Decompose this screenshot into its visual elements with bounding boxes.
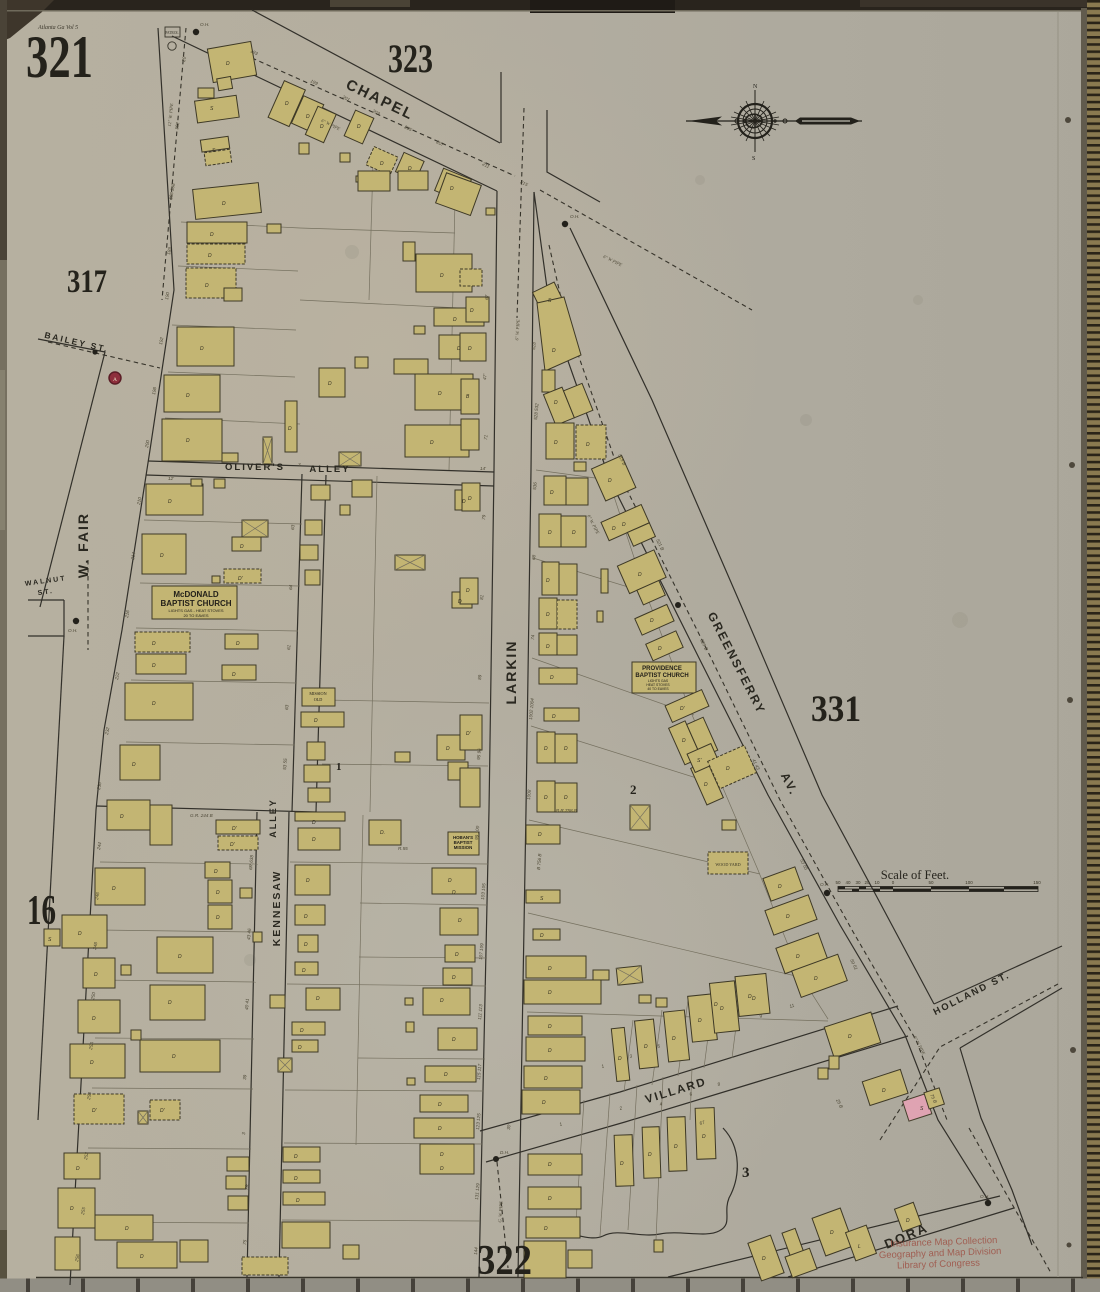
svg-text:KENNESAW: KENNESAW (271, 870, 283, 947)
svg-text:D: D (288, 426, 292, 432)
svg-text:D: D (906, 1218, 910, 1224)
svg-text:BAPTIST CHURCH: BAPTIST CHURCH (160, 599, 231, 608)
svg-text:D: D (786, 914, 790, 920)
svg-text:D: D (762, 1256, 766, 1262)
svg-text:D: D (298, 1045, 302, 1051)
svg-text:B.R 758 B: B.R 758 B (556, 808, 577, 813)
svg-text:O.H.: O.H. (570, 214, 579, 219)
svg-text:D: D (882, 1088, 886, 1094)
svg-text:O.H.: O.H. (200, 22, 209, 27)
svg-text:1: 1 (336, 761, 342, 773)
svg-text:D: D (226, 61, 230, 67)
svg-text:D: D (210, 232, 214, 238)
svg-text:D: D (236, 641, 240, 647)
svg-text:536: 536 (532, 482, 538, 491)
svg-text:50: 50 (835, 880, 841, 885)
svg-text:321: 321 (26, 24, 93, 90)
svg-text:D: D (440, 998, 444, 1004)
svg-text:O.H.: O.H. (820, 882, 829, 887)
svg-text:D: D (328, 381, 332, 387)
svg-text:OLD: OLD (314, 697, 323, 702)
svg-text:D: D (70, 1206, 74, 1212)
svg-text:74: 74 (530, 634, 535, 640)
svg-text:ALLEY: ALLEY (309, 464, 350, 475)
svg-text:D: D (550, 675, 554, 681)
svg-text:D: D (152, 701, 156, 707)
svg-text:O.H.: O.H. (68, 628, 77, 633)
svg-text:D: D (682, 738, 686, 744)
svg-text:W. FAIR: W. FAIR (75, 512, 91, 578)
svg-text:D: D (90, 1060, 94, 1066)
svg-text:D: D (168, 499, 172, 505)
svg-text:D: D (544, 1076, 548, 1082)
svg-text:D: D (172, 1054, 176, 1060)
svg-text:D: D (470, 308, 474, 314)
svg-text:D: D (458, 918, 462, 924)
svg-text:D: D (544, 1226, 548, 1232)
svg-text:144: 144 (473, 1247, 479, 1256)
svg-text:40 41: 40 41 (244, 998, 250, 1010)
svg-text:D: D (222, 201, 226, 207)
svg-text:D: D (208, 253, 212, 259)
svg-text:323: 323 (388, 36, 433, 81)
svg-text:D: D (160, 553, 164, 559)
svg-text:20: 20 (864, 880, 870, 885)
svg-text:Atlanta Ga Vol 5: Atlanta Ga Vol 5 (37, 25, 78, 31)
svg-text:53 55: 53 55 (282, 758, 288, 770)
svg-text:D: D (92, 1016, 96, 1022)
svg-text:N: N (753, 84, 758, 90)
svg-text:L: L (858, 1244, 861, 1250)
svg-text:D: D (814, 976, 818, 982)
svg-text:2: 2 (630, 782, 637, 797)
svg-text:R.55: R.55 (398, 846, 408, 851)
svg-text:D: D (304, 942, 308, 948)
svg-text:317: 317 (67, 264, 107, 300)
svg-text:D: D (552, 348, 556, 354)
svg-text:43 46: 43 46 (246, 928, 252, 940)
svg-text:D: D (168, 1000, 172, 1006)
svg-text:D: D (438, 391, 442, 397)
svg-text:D: D (304, 914, 308, 920)
svg-text:D: D (830, 1230, 834, 1236)
svg-text:D: D (644, 1044, 648, 1050)
svg-text:D: D (554, 400, 558, 406)
svg-text:71: 71 (483, 434, 488, 440)
svg-text:518: 518 (531, 342, 537, 351)
svg-text:D: D (796, 954, 800, 960)
svg-text:D: D (112, 886, 116, 892)
svg-text:G.R. 244 B: G.R. 244 B (190, 813, 213, 818)
svg-text:10: 10 (874, 880, 880, 885)
svg-text:D: D (726, 766, 730, 772)
svg-text:D: D (674, 1144, 678, 1150)
svg-text:12': 12' (168, 476, 174, 481)
svg-text:D: D (546, 578, 550, 584)
svg-text:D: D (440, 1152, 444, 1158)
svg-text:67: 67 (484, 294, 489, 300)
svg-text:D: D (232, 672, 236, 678)
svg-text:D: D (316, 996, 320, 1002)
svg-text:D: D (125, 1226, 129, 1232)
svg-text:D: D (452, 1037, 456, 1043)
svg-text:OLIVER'S: OLIVER'S (225, 462, 285, 473)
svg-text:D: D (564, 795, 568, 801)
svg-text:D: D (320, 124, 324, 130)
svg-text:D: D (140, 1254, 144, 1260)
svg-text:D: D (300, 1028, 304, 1034)
svg-text:D: D (548, 1162, 552, 1168)
svg-text:30': 30' (506, 1124, 512, 1131)
svg-text:D: D (457, 346, 461, 352)
svg-text:D: D (650, 618, 654, 624)
svg-text:D: D (453, 317, 457, 323)
svg-text:PATROL: PATROL (165, 31, 178, 35)
svg-text:McDONALD: McDONALD (173, 590, 219, 599)
svg-text:D: D (438, 1102, 442, 1108)
svg-text:D: D (152, 641, 156, 647)
svg-text:D: D (714, 1002, 718, 1008)
svg-text:D: D (450, 186, 454, 192)
svg-text:D: D (94, 972, 98, 978)
svg-text:D: D (380, 161, 384, 167)
svg-text:D: D (430, 440, 434, 446)
svg-text:D: D (120, 814, 124, 820)
svg-text:95 96: 95 96 (476, 748, 482, 760)
svg-text:D: D (440, 1166, 444, 1172)
svg-text:63: 63 (290, 524, 295, 530)
svg-text:D: D (778, 884, 782, 890)
svg-text:D: D (546, 644, 550, 650)
svg-text:D: D (314, 718, 318, 724)
svg-text:D: D (448, 878, 452, 884)
svg-text:D: D (548, 530, 552, 536)
svg-text:D: D (455, 952, 459, 958)
svg-text:D: D (658, 646, 662, 652)
svg-text:47': 47' (482, 374, 488, 381)
svg-text:D: D (216, 890, 220, 896)
svg-text:40: 40 (845, 880, 851, 885)
svg-text:D: D (408, 166, 412, 172)
svg-text:D: D (468, 496, 472, 502)
svg-text:D: D (552, 714, 556, 720)
svg-text:D: D (216, 915, 220, 921)
svg-text:D: D (466, 588, 470, 594)
svg-text:D: D (612, 526, 616, 532)
svg-text:D: D (186, 438, 190, 444)
svg-text:50: 50 (928, 880, 934, 885)
svg-text:D.: D. (380, 830, 385, 836)
svg-text:A: A (113, 377, 117, 383)
svg-text:D: D (152, 663, 156, 669)
svg-text:D: D (294, 1176, 298, 1182)
svg-text:100: 100 (965, 880, 973, 885)
svg-text:D: D (285, 101, 289, 107)
svg-text:331: 331 (811, 689, 861, 730)
svg-text:D: D (548, 1196, 552, 1202)
svg-text:D: D (704, 782, 708, 788)
svg-text:D: D (548, 990, 552, 996)
svg-text:D: D (698, 1018, 702, 1024)
svg-text:D: D (550, 490, 554, 496)
svg-text:ALLEY: ALLEY (268, 798, 278, 838)
svg-text:20 TO EAVES: 20 TO EAVES (183, 613, 208, 618)
svg-text:MISSION: MISSION (309, 691, 326, 696)
svg-text:81: 81 (479, 594, 484, 600)
svg-text:D: D (648, 1152, 652, 1158)
svg-text:PROVIDENCE: PROVIDENCE (642, 666, 682, 672)
svg-text:150: 150 (1033, 880, 1041, 885)
svg-text:S: S (752, 156, 755, 162)
svg-text:D: D (205, 283, 209, 289)
svg-text:64: 64 (288, 584, 293, 590)
svg-text:D: D (468, 346, 472, 352)
svg-text:D.H.: D.H. (500, 1150, 509, 1155)
svg-text:D: D (620, 1161, 624, 1167)
svg-text:D: D (440, 273, 444, 279)
svg-text:D: D (608, 478, 612, 484)
svg-text:61: 61 (286, 644, 291, 650)
svg-text:D: D (357, 124, 361, 130)
svg-text:D: D (538, 832, 542, 838)
svg-text:D: D (548, 1024, 552, 1030)
svg-text:D: D (554, 440, 558, 446)
svg-text:14': 14' (480, 466, 486, 471)
svg-text:D: D (542, 1100, 546, 1106)
svg-text:79: 79 (481, 514, 486, 520)
svg-text:D: D (586, 442, 590, 448)
svg-text:D: D (638, 572, 642, 578)
svg-text:D: D (240, 544, 244, 550)
svg-text:30: 30 (855, 880, 861, 885)
svg-text:D: D (752, 996, 756, 1002)
svg-text:D: D (564, 746, 568, 752)
svg-text:3: 3 (298, 462, 301, 467)
svg-text:40 TO EAVES: 40 TO EAVES (647, 687, 669, 691)
svg-text:63: 63 (284, 704, 289, 710)
svg-text:D: D (672, 1036, 676, 1042)
svg-text:D: D (178, 954, 182, 960)
svg-text:D: D (544, 795, 548, 801)
svg-text:39: 39 (242, 1074, 247, 1080)
svg-text:68: 68 (531, 554, 536, 560)
svg-text:MISSION: MISSION (454, 845, 473, 850)
svg-text:D: D (302, 968, 306, 974)
svg-text:D: D (548, 1048, 552, 1054)
svg-text:D: D (548, 966, 552, 972)
svg-text:D: D (452, 890, 456, 896)
svg-text:D: D (200, 346, 204, 352)
svg-text:322: 322 (477, 1238, 532, 1284)
svg-text:D: D (540, 933, 544, 939)
svg-text:D: D (312, 837, 316, 843)
svg-text:D: D (848, 1034, 852, 1040)
svg-text:D: D (702, 1134, 706, 1140)
svg-text:D: D (306, 878, 310, 884)
svg-text:D: D (720, 1006, 724, 1012)
svg-text:D: D (544, 746, 548, 752)
svg-text:D: D (462, 499, 466, 505)
svg-text:D: D (186, 393, 190, 399)
svg-text:D: D (296, 1198, 300, 1204)
svg-text:D: D (312, 820, 316, 826)
svg-text:D: D (452, 975, 456, 981)
svg-text:D: D (306, 114, 310, 120)
svg-text:D: D (444, 1072, 448, 1078)
svg-text:LARKIN: LARKIN (503, 640, 519, 705)
svg-text:D: D (294, 1154, 298, 1160)
svg-text:1008: 1008 (526, 789, 532, 800)
svg-text:D: D (214, 869, 218, 875)
svg-text:D: D (76, 1166, 80, 1172)
svg-text:D: D (622, 522, 626, 528)
svg-text:89: 89 (477, 674, 482, 680)
svg-text:75: 75 (242, 1239, 247, 1245)
svg-text:D: D (438, 1126, 442, 1132)
svg-text:D: D (546, 612, 550, 618)
svg-text:D: D (458, 599, 462, 605)
svg-text:16: 16 (27, 888, 56, 934)
svg-text:D: D (446, 746, 450, 752)
svg-text:D: D (572, 530, 576, 536)
svg-text:O.H.: O.H. (980, 1194, 989, 1199)
svg-text:D: D (618, 1056, 622, 1062)
svg-text:D: D (132, 762, 136, 768)
svg-text:D: D (78, 931, 82, 937)
svg-text:WOOD YARD: WOOD YARD (715, 862, 740, 867)
svg-text:3: 3 (742, 1165, 750, 1181)
